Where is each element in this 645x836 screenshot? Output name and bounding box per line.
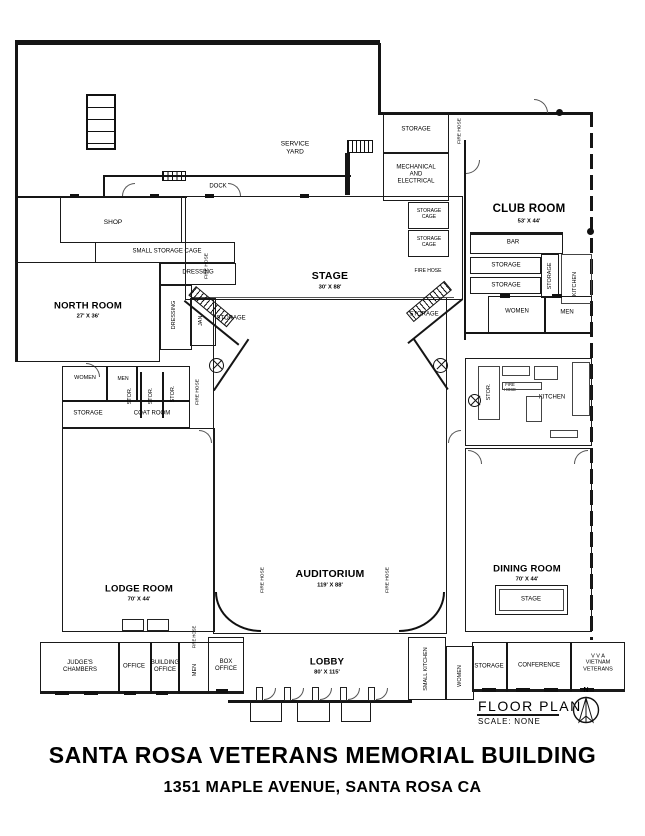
men-label-vertical: MEN (192, 664, 198, 676)
fire-hose-label: FIRE HOSE (458, 118, 463, 144)
wall (136, 366, 138, 400)
bar-label: BAR (507, 239, 519, 246)
door-tick (516, 688, 530, 692)
door-tick (300, 194, 309, 198)
building-office-label: BUILDING OFFICE (150, 660, 180, 674)
wall (570, 642, 572, 692)
small-kitchen-label: SMALL KITCHEN (423, 647, 429, 691)
dining-room-dims: 70' X 44' (516, 577, 539, 584)
kitchen-counter (550, 430, 578, 438)
door-arc (348, 688, 360, 700)
door-tick (216, 689, 228, 693)
north-arrow-icon (570, 695, 602, 727)
fire-hose-label: FIRE HOSE (386, 567, 391, 593)
storage-label: STORAGE (491, 282, 520, 289)
door-leaf (147, 619, 169, 631)
door-tick (552, 294, 562, 298)
lobby-dims: 80' X 115' (314, 670, 340, 677)
north-room (15, 262, 160, 362)
north-room-label: NORTH ROOM (54, 300, 122, 311)
storage-label: STORAGE (73, 410, 102, 417)
door-tick (544, 688, 558, 692)
dock-edge (103, 175, 105, 197)
door-leaf (368, 687, 375, 701)
lobby-vestibule (341, 700, 371, 722)
wall (106, 366, 108, 400)
women-label: WOMEN (505, 308, 529, 315)
wall (465, 332, 592, 334)
club-restrooms (488, 296, 592, 334)
wall (544, 298, 546, 332)
dining-stage-label: STAGE (521, 596, 541, 603)
door-arc (122, 183, 135, 196)
kitchen-counter (534, 366, 558, 380)
floor-plan-sheet: SERVICE YARD DOCK SHOP SMALL STORAGE CAG… (0, 0, 645, 836)
kitchen-island (526, 396, 542, 422)
office-label: OFFICE (123, 663, 145, 670)
door-arc (376, 688, 388, 700)
conference-label: CONFERENCE (518, 662, 560, 669)
fan-icon (468, 394, 481, 407)
dressing-label-vertical: DRESSING (171, 301, 177, 330)
door-leaf (312, 687, 319, 701)
building-title: SANTA ROSA VETERANS MEMORIAL BUILDING (0, 742, 645, 769)
kitchen-label: KITCHEN (539, 394, 565, 401)
dining-room-label: DINING ROOM (493, 563, 561, 574)
floor-plan-underline (477, 714, 559, 716)
fire-hose-label: FIRE HOSE (192, 626, 197, 649)
fan-icon (209, 358, 224, 373)
storage-label: STORAGE (401, 126, 430, 133)
women-label-vertical: WOMEN (457, 665, 463, 687)
floor-plan-title: FLOOR PLAN (478, 698, 582, 714)
fan-icon (433, 358, 448, 373)
door-arc (448, 430, 461, 443)
door-tick (70, 194, 79, 198)
women-label: WOMEN (74, 375, 96, 381)
door-arc (292, 688, 304, 700)
kitchen-counter (502, 366, 530, 376)
coat-room-label: COAT ROOM (134, 410, 170, 417)
door-tick (500, 294, 510, 298)
wall-jog (378, 43, 381, 115)
door-tick (124, 691, 136, 695)
wall-dot (587, 228, 594, 235)
shop-label: SHOP (104, 219, 122, 227)
door-leaf (284, 687, 291, 701)
lobby-vestibule (297, 700, 330, 722)
fire-hose-label: FIRE HOSE (196, 379, 201, 405)
wall (506, 642, 508, 692)
door-arc (264, 688, 276, 700)
stor-label: STOR. (127, 388, 133, 405)
lobby-vestibule (250, 700, 282, 722)
building-address: 1351 MAPLE AVENUE, SANTA ROSA CA (0, 779, 645, 797)
door-arc (320, 688, 332, 700)
dock-stair (162, 171, 186, 181)
box-office-label: BOX OFFICE (213, 659, 239, 673)
club-room-label: CLUB ROOM (493, 203, 566, 217)
men-label: MEN (560, 309, 573, 316)
door-arc (466, 160, 480, 174)
stor-label: STOR. (170, 386, 176, 403)
stage-dims: 30' X 88' (319, 285, 342, 292)
auditorium-label: AUDITORIUM (296, 568, 365, 580)
floor-plan-scale: SCALE: NONE (478, 717, 541, 726)
door-tick (150, 194, 159, 198)
kitchen-counter (502, 382, 542, 390)
storage-label-vertical: STORAGE (547, 263, 553, 290)
kitchen-label-vertical: KITCHEN (572, 272, 578, 296)
lodge-room-label: LODGE ROOM (105, 583, 173, 594)
door-leaf (122, 619, 144, 631)
door-leaf (340, 687, 347, 701)
door-tick (205, 194, 214, 198)
storage-cage-label: STORAGE CAGE (413, 209, 445, 221)
men-label: MEN (117, 377, 128, 383)
door-tick (55, 691, 69, 695)
wall (118, 642, 120, 694)
vva-line3: VETERANS (578, 666, 618, 672)
fire-hose-label: FIRE HOSE (415, 269, 442, 275)
door-arc (228, 183, 241, 196)
door-tick (84, 691, 98, 695)
stage-label: STAGE (312, 270, 348, 282)
storage-label: STORAGE (491, 262, 520, 269)
club-room-dims: 53' X 44' (518, 219, 541, 226)
stor-label: STOR. (148, 388, 154, 405)
yard-stair (347, 140, 373, 153)
door-leaf (256, 687, 263, 701)
lodge-room-dims: 70' X 44' (128, 597, 151, 604)
stair-grid (86, 94, 116, 150)
fire-hose-label: FIRE HOSE (261, 567, 266, 593)
judges-chambers-label: JUDGE'S CHAMBERS (57, 660, 103, 674)
door-arc (534, 99, 548, 113)
lobby-label: LOBBY (310, 656, 344, 667)
mechanical-label: MECHANICAL AND ELECTRICAL (393, 164, 439, 185)
storage-label: STORAGE (474, 663, 503, 670)
auditorium-dims: 119' X 88' (317, 583, 343, 590)
door-tick (482, 688, 496, 692)
storage-cage-label: STORAGE CAGE (413, 237, 445, 249)
north-room-dims: 27' X 36' (77, 314, 100, 321)
wall-dot (556, 109, 563, 116)
vietnam-veterans-label: V V A VIETNAM VETERANS (578, 653, 618, 672)
kitchen-counter (572, 362, 590, 416)
service-yard-label: SERVICE YARD (278, 140, 312, 155)
dock-edge (103, 175, 351, 177)
door-tick (156, 691, 168, 695)
wall-top-band (15, 40, 380, 45)
dock-label: DOCK (209, 183, 226, 190)
yard-wall (345, 153, 350, 195)
north-label: N (583, 687, 588, 695)
stor-label-vertical: STOR. (486, 384, 492, 401)
